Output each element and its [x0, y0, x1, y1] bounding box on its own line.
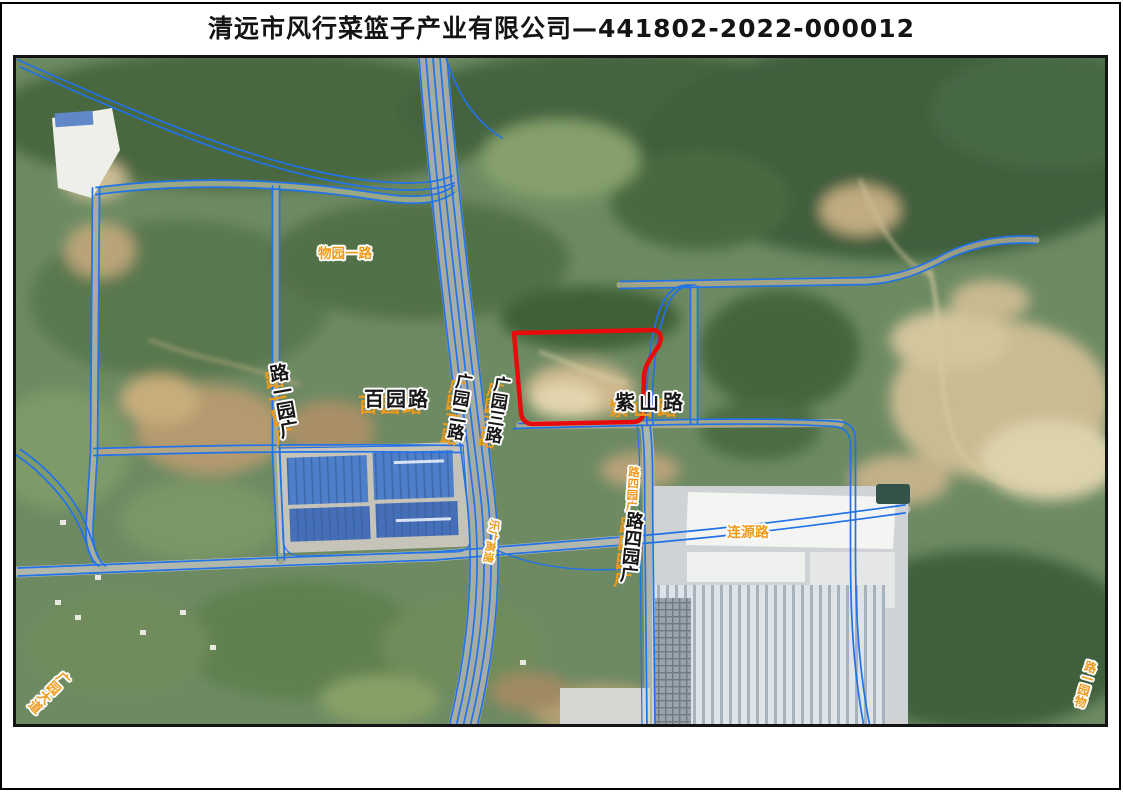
- road-label-lianyuan-lu: 连源路: [727, 526, 769, 540]
- road-label-zishan-lu: 紫山路: [615, 392, 687, 412]
- road-label-guangyuan-silu-orange: 路四园广: [625, 466, 640, 513]
- road-label-baiyuan-lu: 百园路: [364, 389, 430, 409]
- blue-warehouse-complex: [276, 442, 470, 554]
- satellite-basemap: [16, 58, 1105, 724]
- road-label-wuyuan-yilu-top: 物园一路: [318, 248, 372, 262]
- map-viewport[interactable]: 物园一路 路一园广 百园路 广园二路 广园三路 紫山路 路四园广 路四园广 乐广…: [13, 55, 1108, 727]
- page-title: 清远市风行菜篮子产业有限公司—441802-2022-000012: [0, 9, 1123, 45]
- figure-page: 清远市风行菜篮子产业有限公司—441802-2022-000012: [0, 0, 1123, 794]
